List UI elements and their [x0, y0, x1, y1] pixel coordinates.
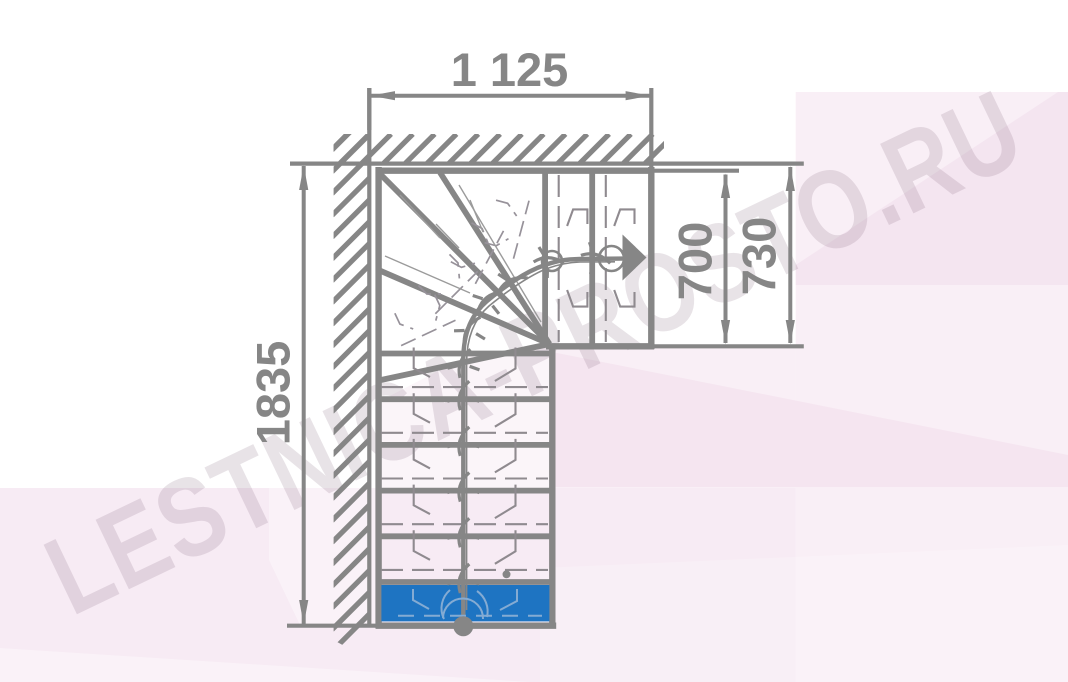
svg-text:1 125: 1 125	[451, 43, 569, 96]
svg-text:730: 730	[733, 217, 786, 295]
svg-text:1835: 1835	[247, 341, 300, 446]
svg-text:700: 700	[669, 222, 722, 300]
